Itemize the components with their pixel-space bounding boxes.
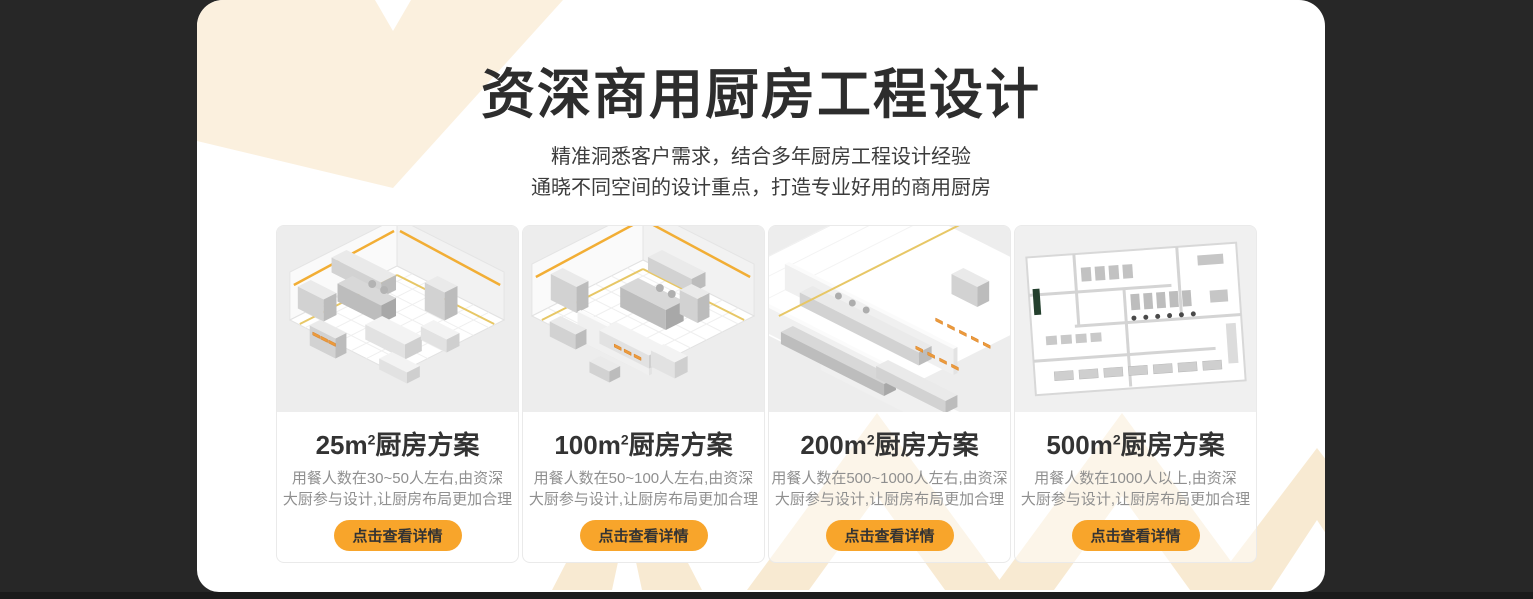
card-description: 用餐人数在30~50人左右,由资深 大厨参与设计,让厨房布局更加合理 [277, 468, 518, 510]
card-area: 25m [316, 430, 368, 460]
content-panel: 资深商用厨房工程设计 精准洞悉客户需求，结合多年厨房工程设计经验 通晓不同空间的… [197, 0, 1325, 592]
card-title: 200m2厨房方案 [769, 425, 1010, 462]
solution-card-200sqm: 200m2厨房方案 用餐人数在500~1000人左右,由资深 大厨参与设计,让厨… [768, 225, 1011, 563]
kitchen-render-image [277, 226, 518, 412]
card-title: 25m2厨房方案 [277, 425, 518, 462]
card-title-suffix: 厨房方案 [375, 430, 479, 460]
kitchen-render-image [769, 226, 1010, 412]
isometric-kitchen-render-100sqm-icon [523, 226, 764, 412]
card-area-sup: 2 [1113, 431, 1121, 447]
card-area-sup: 2 [621, 431, 629, 447]
card-description: 用餐人数在1000人以上,由资深 大厨参与设计,让厨房布局更加合理 [1015, 468, 1256, 510]
solution-card-100sqm: 100m2厨房方案 用餐人数在50~100人左右,由资深 大厨参与设计,让厨房布… [522, 225, 765, 563]
card-area: 500m [1046, 430, 1113, 460]
card-description-line-2: 大厨参与设计,让厨房布局更加合理 [523, 489, 764, 510]
view-details-button[interactable]: 点击查看详情 [334, 520, 462, 551]
card-title-suffix: 厨房方案 [1121, 430, 1225, 460]
card-description-line-1: 用餐人数在500~1000人左右,由资深 [769, 468, 1010, 489]
card-description-line-1: 用餐人数在1000人以上,由资深 [1015, 468, 1256, 489]
view-details-button[interactable]: 点击查看详情 [1072, 520, 1200, 551]
view-details-button[interactable]: 点击查看详情 [826, 520, 954, 551]
card-description: 用餐人数在500~1000人左右,由资深 大厨参与设计,让厨房布局更加合理 [769, 468, 1010, 510]
kitchen-render-image [523, 226, 764, 412]
kitchen-render-image [1015, 226, 1256, 412]
card-description-line-1: 用餐人数在30~50人左右,由资深 [277, 468, 518, 489]
card-description: 用餐人数在50~100人左右,由资深 大厨参与设计,让厨房布局更加合理 [523, 468, 764, 510]
subtitle-line-2: 通晓不同空间的设计重点，打造专业好用的商用厨房 [197, 173, 1325, 204]
isometric-kitchen-render-25sqm-icon [277, 226, 518, 412]
solution-cards-row: 25m2厨房方案 用餐人数在30~50人左右,由资深 大厨参与设计,让厨房布局更… [276, 225, 1257, 563]
page-title: 资深商用厨房工程设计 [197, 50, 1325, 129]
card-title: 500m2厨房方案 [1015, 425, 1256, 462]
card-description-line-2: 大厨参与设计,让厨房布局更加合理 [1015, 489, 1256, 510]
card-title-suffix: 厨房方案 [875, 430, 979, 460]
isometric-kitchen-render-500sqm-icon [1015, 226, 1256, 412]
card-title: 100m2厨房方案 [523, 425, 764, 462]
card-area-sup: 2 [867, 431, 875, 447]
card-title-suffix: 厨房方案 [629, 430, 733, 460]
solution-card-500sqm: 500m2厨房方案 用餐人数在1000人以上,由资深 大厨参与设计,让厨房布局更… [1014, 225, 1257, 563]
card-area: 100m [554, 430, 621, 460]
isometric-kitchen-render-200sqm-icon [769, 226, 1010, 412]
card-description-line-2: 大厨参与设计,让厨房布局更加合理 [769, 489, 1010, 510]
card-area: 200m [800, 430, 867, 460]
solution-card-25sqm: 25m2厨房方案 用餐人数在30~50人左右,由资深 大厨参与设计,让厨房布局更… [276, 225, 519, 563]
view-details-button[interactable]: 点击查看详情 [580, 520, 708, 551]
card-description-line-2: 大厨参与设计,让厨房布局更加合理 [277, 489, 518, 510]
card-description-line-1: 用餐人数在50~100人左右,由资深 [523, 468, 764, 489]
bottom-dark-strip [0, 592, 1533, 599]
section-header: 资深商用厨房工程设计 精准洞悉客户需求，结合多年厨房工程设计经验 通晓不同空间的… [197, 50, 1325, 204]
subtitle-line-1: 精准洞悉客户需求，结合多年厨房工程设计经验 [197, 142, 1325, 173]
